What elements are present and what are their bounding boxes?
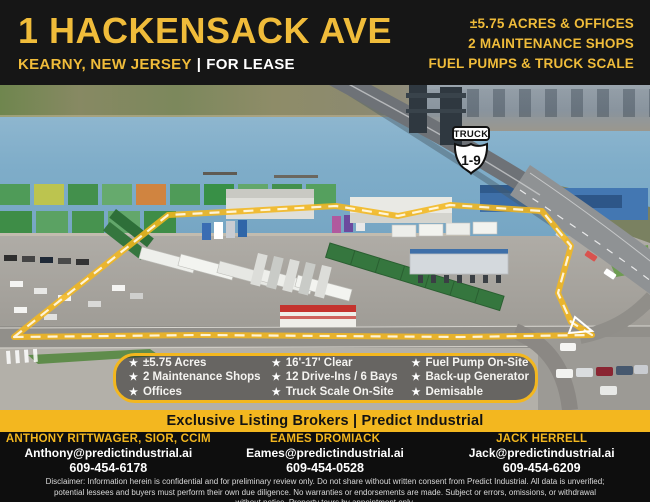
sign-truck-label: TRUCK xyxy=(454,129,489,140)
feature-label: 12 Drive-Ins / 6 Bays xyxy=(286,371,398,385)
brokers-band-label: Exclusive Listing Brokers | Predict Indu… xyxy=(166,413,483,429)
feature-label: Demisable xyxy=(425,386,483,400)
star-icon: ★ xyxy=(129,371,138,385)
header-highlights: ±5.75 ACRES & OFFICES 2 MAINTENANCE SHOP… xyxy=(428,0,650,85)
feature-label: ±5.75 Acres xyxy=(143,357,206,371)
disclaimer-text: Disclaimer: Information herein is confid… xyxy=(0,473,650,502)
feature-label: Offices xyxy=(143,386,182,400)
features-col-2: ★16'-17' Clear ★12 Drive-Ins / 6 Bays ★T… xyxy=(272,357,412,400)
star-icon: ★ xyxy=(412,371,421,385)
star-icon: ★ xyxy=(412,386,421,400)
feature-item: ★Truck Scale On-Site xyxy=(272,386,412,400)
feature-label: Truck Scale On-Site xyxy=(286,386,394,400)
star-icon: ★ xyxy=(129,386,138,400)
feature-label: 2 Maintenance Shops xyxy=(143,371,261,385)
broker-contacts: ANTHONY RITTWAGER, SIOR, CCIM Anthony@pr… xyxy=(0,432,650,473)
listing-flyer: 1 HACKENSACK AVE KEARNY, NEW JERSEY|FOR … xyxy=(0,0,650,502)
star-icon: ★ xyxy=(129,357,138,371)
feature-item: ★12 Drive-Ins / 6 Bays xyxy=(272,371,412,385)
features-panel: ★±5.75 Acres ★2 Maintenance Shops ★Offic… xyxy=(113,353,538,403)
location-label: KEARNY, NEW JERSEY xyxy=(18,56,192,73)
feature-item: ★Fuel Pump On-Site xyxy=(412,357,530,371)
red-roof-building xyxy=(280,305,356,327)
broker-email: Eames@predictindustrial.ai xyxy=(246,446,404,460)
aerial-photo: TRUCK 1-9 ★±5.75 Acres ★2 Maintenance Sh… xyxy=(0,85,650,410)
broker-card: JACK HERRELL Jack@predictindustrial.ai 6… xyxy=(433,432,650,473)
feature-item: ★16'-17' Clear xyxy=(272,357,412,371)
feature-item: ★Demisable xyxy=(412,386,530,400)
broker-name: JACK HERRELL xyxy=(496,433,587,445)
page-title: 1 HACKENSACK AVE xyxy=(18,13,392,49)
feature-label: 16'-17' Clear xyxy=(286,357,353,371)
features-col-3: ★Fuel Pump On-Site ★Back-up Generator ★D… xyxy=(412,357,530,400)
feature-item: ★Offices xyxy=(129,386,272,400)
feature-label: Fuel Pump On-Site xyxy=(425,357,528,371)
features-col-1: ★±5.75 Acres ★2 Maintenance Shops ★Offic… xyxy=(129,357,272,400)
star-icon: ★ xyxy=(412,357,421,371)
broker-email: Anthony@predictindustrial.ai xyxy=(24,446,192,460)
broker-email: Jack@predictindustrial.ai xyxy=(469,446,615,460)
star-icon: ★ xyxy=(272,371,281,385)
brokers-band: Exclusive Listing Brokers | Predict Indu… xyxy=(0,410,650,432)
feature-label: Back-up Generator xyxy=(425,371,529,385)
highlight-acres: ±5.75 ACRES & OFFICES xyxy=(428,14,634,34)
header: 1 HACKENSACK AVE KEARNY, NEW JERSEY|FOR … xyxy=(0,0,650,85)
highlight-fuel: FUEL PUMPS & TRUCK SCALE xyxy=(428,54,634,74)
highlight-shops: 2 MAINTENANCE SHOPS xyxy=(428,34,634,54)
feature-item: ★±5.75 Acres xyxy=(129,357,272,371)
broker-card: EAMES DROMIACK Eames@predictindustrial.a… xyxy=(217,432,434,473)
sign-route-number: 1-9 xyxy=(461,153,481,168)
feature-item: ★2 Maintenance Shops xyxy=(129,371,272,385)
broker-name: ANTHONY RITTWAGER, SIOR, CCIM xyxy=(6,433,211,445)
broker-card: ANTHONY RITTWAGER, SIOR, CCIM Anthony@pr… xyxy=(0,432,217,473)
trailer-row-right xyxy=(392,222,497,237)
star-icon: ★ xyxy=(272,386,281,400)
header-left: 1 HACKENSACK AVE KEARNY, NEW JERSEY|FOR … xyxy=(0,0,392,85)
lease-status: FOR LEASE xyxy=(206,56,295,73)
feature-item: ★Back-up Generator xyxy=(412,371,530,385)
trailer-cluster-gray xyxy=(250,253,331,298)
broker-name: EAMES DROMIACK xyxy=(270,433,380,445)
subtitle: KEARNY, NEW JERSEY|FOR LEASE xyxy=(18,56,392,73)
subtitle-divider: | xyxy=(197,56,202,73)
star-icon: ★ xyxy=(272,357,281,371)
